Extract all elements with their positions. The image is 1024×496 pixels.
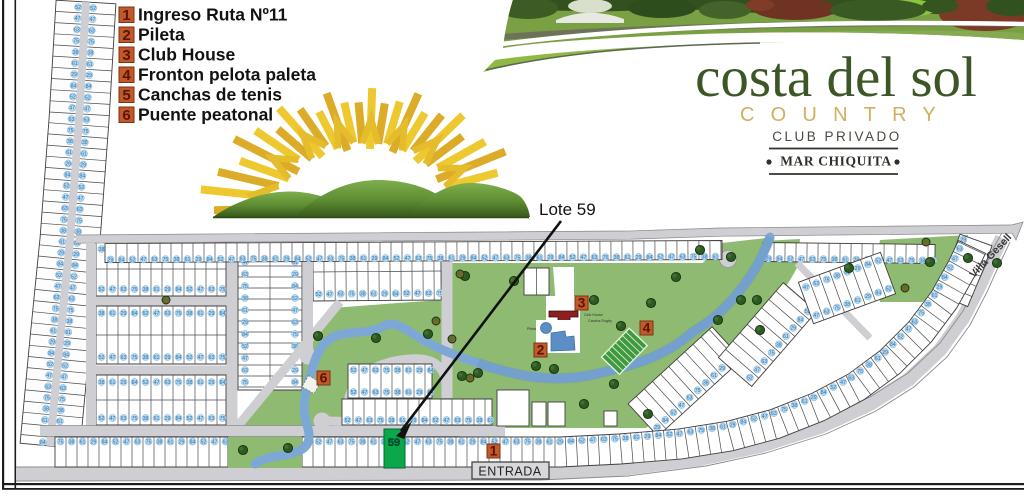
svg-text:38: 38: [623, 436, 629, 442]
svg-text:47: 47: [493, 256, 499, 262]
svg-text:61: 61: [625, 255, 631, 261]
svg-text:47: 47: [887, 258, 893, 264]
svg-text:84: 84: [220, 311, 226, 317]
svg-text:52: 52: [394, 256, 400, 262]
svg-text:61: 61: [537, 255, 543, 261]
svg-text:75: 75: [824, 277, 830, 283]
svg-text:29: 29: [121, 311, 127, 317]
svg-text:61: 61: [51, 329, 57, 335]
svg-text:84: 84: [292, 284, 298, 290]
svg-text:61: 61: [488, 418, 494, 424]
svg-text:4: 4: [122, 67, 131, 84]
svg-text:75: 75: [384, 368, 390, 374]
svg-text:75: 75: [53, 306, 59, 312]
svg-text:63: 63: [121, 416, 127, 422]
svg-text:52: 52: [85, 95, 91, 101]
svg-text:52: 52: [747, 376, 753, 382]
svg-text:38: 38: [834, 274, 840, 280]
svg-text:52: 52: [113, 439, 119, 445]
svg-text:63: 63: [242, 272, 248, 278]
svg-text:52: 52: [351, 368, 357, 374]
svg-text:52: 52: [345, 418, 351, 424]
svg-text:Puente peatonal: Puente peatonal: [138, 105, 273, 125]
svg-text:61: 61: [242, 308, 248, 314]
svg-text:Fronton pelota paleta: Fronton pelota paleta: [138, 65, 316, 85]
svg-text:38: 38: [614, 255, 620, 261]
svg-text:63: 63: [426, 291, 432, 297]
svg-text:84: 84: [568, 439, 574, 445]
svg-text:61: 61: [406, 390, 412, 396]
svg-text:47: 47: [317, 256, 323, 262]
svg-text:38: 38: [395, 390, 401, 396]
svg-text:29: 29: [548, 255, 554, 261]
svg-text:75: 75: [437, 439, 443, 445]
svg-text:75: 75: [83, 129, 89, 135]
svg-text:52: 52: [292, 296, 298, 302]
svg-text:75: 75: [603, 255, 609, 261]
svg-text:47: 47: [110, 416, 116, 422]
svg-text:52: 52: [667, 432, 673, 438]
svg-text:52: 52: [99, 416, 105, 422]
svg-text:29: 29: [86, 73, 92, 79]
svg-text:63: 63: [601, 437, 607, 443]
svg-text:38: 38: [82, 140, 88, 146]
svg-text:52: 52: [351, 390, 357, 396]
svg-text:2: 2: [537, 342, 545, 358]
svg-text:47: 47: [198, 416, 204, 422]
svg-text:75: 75: [88, 40, 94, 46]
svg-text:47: 47: [242, 356, 248, 362]
svg-text:47: 47: [46, 373, 52, 379]
svg-text:61: 61: [459, 439, 465, 445]
svg-text:47: 47: [356, 418, 362, 424]
svg-text:29: 29: [292, 368, 298, 374]
svg-text:52: 52: [658, 255, 664, 261]
svg-text:75: 75: [834, 306, 840, 312]
svg-text:52: 52: [187, 355, 193, 361]
svg-text:75: 75: [384, 390, 390, 396]
svg-text:38: 38: [187, 380, 193, 386]
svg-text:47: 47: [840, 380, 846, 386]
svg-text:63: 63: [687, 396, 693, 402]
svg-text:47: 47: [141, 257, 147, 263]
svg-text:63: 63: [373, 390, 379, 396]
svg-text:75: 75: [132, 355, 138, 361]
svg-text:47: 47: [69, 106, 75, 112]
svg-text:75: 75: [146, 439, 152, 445]
svg-text:47: 47: [762, 414, 768, 420]
svg-text:52: 52: [579, 438, 585, 444]
svg-text:Ingreso Ruta Nº11: Ingreso Ruta Nº11: [138, 5, 288, 25]
svg-text:29: 29: [71, 72, 77, 78]
svg-text:84: 84: [86, 84, 92, 90]
svg-text:75: 75: [61, 217, 67, 223]
svg-text:47: 47: [198, 355, 204, 361]
svg-text:47: 47: [55, 284, 61, 290]
svg-text:63: 63: [292, 320, 298, 326]
svg-text:29: 29: [790, 326, 796, 332]
svg-text:52: 52: [830, 385, 836, 391]
svg-text:63: 63: [367, 418, 373, 424]
svg-text:1: 1: [122, 7, 130, 24]
svg-text:63: 63: [62, 206, 68, 212]
svg-text:63: 63: [455, 418, 461, 424]
svg-text:61: 61: [371, 291, 377, 297]
svg-text:63: 63: [328, 256, 334, 262]
svg-text:29: 29: [108, 257, 114, 263]
svg-text:84: 84: [481, 439, 487, 445]
svg-text:75: 75: [242, 284, 248, 290]
svg-text:29: 29: [64, 341, 70, 347]
svg-text:75: 75: [349, 439, 355, 445]
svg-text:38: 38: [99, 311, 105, 317]
svg-text:75: 75: [132, 416, 138, 422]
svg-text:38: 38: [143, 287, 149, 293]
svg-text:47: 47: [415, 291, 421, 297]
svg-text:52: 52: [947, 266, 953, 272]
svg-text:38: 38: [174, 257, 180, 263]
svg-text:47: 47: [90, 17, 96, 23]
svg-text:63: 63: [898, 258, 904, 264]
svg-text:47: 47: [212, 439, 218, 445]
svg-text:38: 38: [73, 50, 79, 56]
svg-text:47: 47: [952, 256, 958, 262]
svg-text:61: 61: [361, 256, 367, 262]
svg-text:61: 61: [875, 356, 881, 362]
svg-text:61: 61: [371, 439, 377, 445]
svg-text:52: 52: [886, 287, 892, 293]
svg-text:84: 84: [292, 380, 298, 386]
svg-text:75: 75: [68, 128, 74, 134]
svg-text:47: 47: [906, 327, 912, 333]
svg-text:61: 61: [110, 380, 116, 386]
svg-text:MAR CHIQUITA: MAR CHIQUITA: [780, 154, 892, 169]
svg-text:84: 84: [383, 256, 389, 262]
svg-text:52: 52: [788, 257, 794, 263]
svg-text:63: 63: [45, 384, 51, 390]
svg-text:47: 47: [327, 292, 333, 298]
svg-text:38: 38: [99, 380, 105, 386]
svg-text:63: 63: [592, 255, 598, 261]
svg-text:38: 38: [536, 439, 542, 445]
svg-text:63: 63: [240, 257, 246, 263]
svg-text:84: 84: [559, 255, 565, 261]
svg-text:47: 47: [362, 368, 368, 374]
svg-text:52: 52: [99, 355, 105, 361]
svg-text:29: 29: [209, 311, 215, 317]
svg-text:29: 29: [417, 390, 423, 396]
svg-text:63: 63: [69, 117, 75, 123]
svg-text:29: 29: [417, 368, 423, 374]
svg-text:47: 47: [154, 311, 160, 317]
svg-text:84: 84: [57, 262, 63, 268]
svg-text:29: 29: [719, 366, 725, 372]
svg-text:63: 63: [89, 28, 95, 34]
svg-text:63: 63: [912, 319, 918, 325]
svg-text:29: 29: [284, 257, 290, 263]
svg-text:63: 63: [810, 257, 816, 263]
svg-text:29: 29: [882, 350, 888, 356]
svg-text:47: 47: [677, 431, 683, 437]
svg-text:52: 52: [201, 439, 207, 445]
svg-text:75: 75: [918, 311, 924, 317]
svg-text:29: 29: [165, 287, 171, 293]
svg-text:61: 61: [198, 380, 204, 386]
svg-text:4: 4: [643, 320, 651, 336]
svg-text:29: 29: [730, 422, 736, 428]
svg-text:47: 47: [154, 380, 160, 386]
svg-text:63: 63: [688, 430, 694, 436]
svg-text:29: 29: [209, 380, 215, 386]
svg-text:63: 63: [813, 281, 819, 287]
svg-text:75: 75: [857, 369, 863, 375]
svg-text:63: 63: [54, 295, 60, 301]
svg-text:61: 61: [59, 239, 65, 245]
svg-text:84: 84: [102, 439, 108, 445]
svg-text:52: 52: [404, 291, 410, 297]
svg-text:47: 47: [110, 355, 116, 361]
svg-text:63: 63: [209, 355, 215, 361]
svg-text:52: 52: [875, 259, 881, 265]
svg-text:38: 38: [43, 407, 49, 413]
svg-text:Club House: Club House: [138, 45, 235, 65]
svg-text:38: 38: [360, 439, 366, 445]
svg-text:29: 29: [645, 434, 651, 440]
svg-text:38: 38: [143, 416, 149, 422]
svg-text:47: 47: [63, 195, 69, 201]
svg-text:61: 61: [42, 418, 48, 424]
svg-text:61: 61: [198, 311, 204, 317]
svg-text:38: 38: [776, 342, 782, 348]
svg-text:costa del sol: costa del sol: [695, 46, 977, 109]
svg-text:61: 61: [843, 257, 849, 263]
svg-text:84: 84: [656, 433, 662, 439]
svg-text:47: 47: [590, 438, 596, 444]
svg-text:47: 47: [813, 313, 819, 319]
svg-text:63: 63: [338, 439, 344, 445]
svg-text:84: 84: [422, 418, 428, 424]
svg-text:52: 52: [482, 256, 488, 262]
svg-text:75: 75: [525, 439, 531, 445]
svg-text:61: 61: [87, 62, 93, 68]
svg-text:63: 63: [152, 257, 158, 263]
svg-text:29: 29: [196, 257, 202, 263]
svg-text:84: 84: [176, 355, 182, 361]
svg-text:52: 52: [218, 257, 224, 263]
svg-text:38: 38: [709, 426, 715, 432]
svg-text:63: 63: [416, 256, 422, 262]
svg-text:61: 61: [185, 257, 191, 263]
svg-text:61: 61: [400, 418, 406, 424]
svg-text:84: 84: [72, 263, 78, 269]
svg-text:38: 38: [792, 403, 798, 409]
svg-text:29: 29: [292, 272, 298, 278]
svg-text:47: 47: [292, 308, 298, 314]
svg-text:38: 38: [99, 247, 105, 253]
svg-text:38: 38: [52, 317, 58, 323]
svg-text:47: 47: [669, 255, 675, 261]
svg-text:63: 63: [60, 386, 66, 392]
svg-text:29: 29: [636, 255, 642, 261]
svg-text:75: 75: [59, 397, 65, 403]
svg-text:61: 61: [66, 150, 72, 156]
svg-text:75: 75: [73, 39, 79, 45]
svg-text:84: 84: [942, 275, 948, 281]
svg-text:63: 63: [338, 292, 344, 298]
svg-text:47: 47: [581, 255, 587, 261]
svg-text:63: 63: [69, 297, 75, 303]
svg-text:38: 38: [67, 139, 73, 145]
svg-text:ENTRADA: ENTRADA: [478, 465, 541, 479]
svg-text:52: 52: [99, 287, 105, 293]
svg-text:47: 47: [84, 107, 90, 113]
svg-text:75: 75: [695, 388, 701, 394]
svg-text:38: 38: [360, 292, 366, 298]
svg-text:47: 47: [61, 375, 67, 381]
svg-text:61: 61: [154, 287, 160, 293]
svg-text:COUNTRY: COUNTRY: [740, 104, 952, 126]
svg-text:47: 47: [327, 439, 333, 445]
svg-text:84: 84: [865, 262, 871, 268]
svg-text:84: 84: [40, 440, 46, 446]
svg-text:38: 38: [866, 362, 872, 368]
svg-text:61: 61: [783, 334, 789, 340]
svg-text:63: 63: [84, 118, 90, 124]
svg-text:38: 38: [477, 418, 483, 424]
svg-text:29: 29: [865, 294, 871, 300]
svg-text:52: 52: [242, 344, 248, 350]
svg-text:47: 47: [503, 439, 509, 445]
svg-text:6: 6: [320, 370, 328, 386]
svg-text:75: 75: [691, 255, 697, 261]
svg-text:75: 75: [769, 351, 775, 357]
svg-text:61: 61: [720, 424, 726, 430]
svg-text:52: 52: [79, 185, 85, 191]
svg-text:52: 52: [671, 410, 677, 416]
svg-text:75: 75: [612, 437, 618, 443]
svg-text:84: 84: [647, 255, 653, 261]
svg-text:63: 63: [514, 439, 520, 445]
svg-text:63: 63: [824, 309, 830, 315]
svg-text:59: 59: [388, 437, 400, 449]
svg-text:Lote 59: Lote 59: [539, 200, 596, 219]
svg-text:63: 63: [135, 439, 141, 445]
svg-text:63: 63: [209, 416, 215, 422]
svg-text:63: 63: [77, 207, 83, 213]
svg-text:52: 52: [187, 287, 193, 293]
svg-text:38: 38: [395, 368, 401, 374]
svg-text:75: 75: [44, 396, 50, 402]
svg-text:63: 63: [680, 255, 686, 261]
svg-text:29: 29: [937, 285, 943, 291]
svg-text:52: 52: [306, 256, 312, 262]
svg-text:38: 38: [157, 439, 163, 445]
svg-text:38: 38: [389, 418, 395, 424]
svg-text:47: 47: [124, 439, 130, 445]
svg-text:84: 84: [220, 380, 226, 386]
svg-text:29: 29: [242, 320, 248, 326]
svg-text:84: 84: [471, 256, 477, 262]
svg-text:61: 61: [57, 419, 63, 425]
svg-text:52: 52: [751, 417, 757, 423]
svg-text:84: 84: [176, 416, 182, 422]
svg-text:63: 63: [121, 355, 127, 361]
svg-text:75: 75: [220, 287, 226, 293]
svg-text:38: 38: [60, 228, 66, 234]
svg-text:63: 63: [121, 287, 127, 293]
svg-text:38: 38: [438, 256, 444, 262]
svg-text:63: 63: [74, 27, 80, 33]
svg-text:47: 47: [70, 286, 76, 292]
svg-text:63: 63: [242, 368, 248, 374]
svg-text:52: 52: [130, 257, 136, 263]
svg-text:84: 84: [65, 173, 71, 179]
svg-text:75: 75: [349, 292, 355, 298]
svg-text:52: 52: [570, 255, 576, 261]
svg-text:75: 75: [176, 311, 182, 317]
svg-text:38: 38: [920, 258, 926, 264]
svg-text:47: 47: [362, 390, 368, 396]
svg-text:38: 38: [88, 51, 94, 57]
svg-text:61: 61: [713, 254, 719, 260]
svg-text:75: 75: [466, 418, 472, 424]
svg-text:84: 84: [393, 291, 399, 297]
svg-text:84: 84: [119, 257, 125, 263]
svg-text:61: 61: [932, 293, 938, 299]
svg-text:84: 84: [71, 83, 77, 89]
svg-text:75: 75: [427, 256, 433, 262]
svg-text:63: 63: [957, 247, 963, 253]
svg-text:63: 63: [165, 311, 171, 317]
svg-text:38: 38: [242, 296, 248, 302]
svg-text:38: 38: [69, 439, 75, 445]
svg-text:61: 61: [449, 256, 455, 262]
svg-text:52: 52: [143, 311, 149, 317]
svg-text:38: 38: [262, 257, 268, 263]
svg-text:38: 38: [187, 311, 193, 317]
svg-text:29: 29: [179, 439, 185, 445]
svg-text:CLUB PRIVADO: CLUB PRIVADO: [772, 129, 902, 144]
svg-text:63: 63: [373, 368, 379, 374]
svg-text:61: 61: [154, 416, 160, 422]
svg-text:29: 29: [80, 163, 86, 169]
svg-text:38: 38: [925, 302, 931, 308]
svg-text:38: 38: [58, 408, 64, 414]
svg-text:47: 47: [679, 403, 685, 409]
svg-text:84: 84: [740, 420, 746, 426]
svg-text:84: 84: [132, 311, 138, 317]
svg-text:61: 61: [110, 311, 116, 317]
svg-text:61: 61: [855, 298, 861, 304]
svg-text:47: 47: [444, 418, 450, 424]
svg-text:61: 61: [72, 61, 78, 67]
svg-text:75: 75: [220, 355, 226, 361]
svg-text:75: 75: [292, 332, 298, 338]
svg-text:75: 75: [220, 416, 226, 422]
svg-text:Canchas de tenis: Canchas de tenis: [138, 85, 282, 105]
svg-text:75: 75: [58, 439, 64, 445]
svg-text:29: 29: [49, 340, 55, 346]
svg-text:29: 29: [460, 256, 466, 262]
svg-text:52: 52: [316, 292, 322, 298]
svg-text:29: 29: [855, 266, 861, 272]
svg-text:61: 61: [154, 355, 160, 361]
svg-text:75: 75: [163, 257, 169, 263]
svg-text:52: 52: [56, 273, 62, 279]
svg-text:47: 47: [75, 16, 81, 22]
svg-text:61: 61: [65, 330, 71, 336]
svg-text:38: 38: [702, 255, 708, 261]
